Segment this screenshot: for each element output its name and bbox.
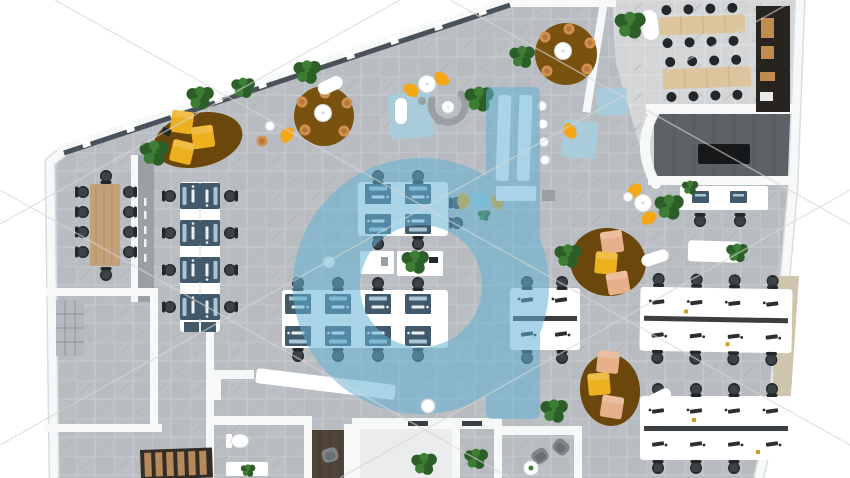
floorplan-render bbox=[0, 0, 850, 478]
wicker-chair bbox=[257, 136, 268, 147]
round-table bbox=[555, 43, 572, 60]
office-chair bbox=[690, 460, 702, 474]
workstation bbox=[200, 294, 220, 320]
wicker-chair bbox=[585, 38, 596, 49]
desk-item bbox=[542, 190, 555, 201]
desk-item bbox=[756, 450, 760, 454]
kitchen-shelf bbox=[760, 72, 775, 81]
office-chair bbox=[123, 246, 137, 258]
workstation bbox=[180, 183, 200, 209]
floorplan-canvas bbox=[0, 0, 850, 478]
office-chair bbox=[729, 274, 741, 288]
wicker-chair bbox=[564, 24, 575, 35]
wall bbox=[44, 424, 162, 432]
phone-booth bbox=[312, 430, 344, 478]
office-chair bbox=[651, 350, 663, 364]
office-chair bbox=[224, 264, 238, 276]
office-chair bbox=[100, 170, 112, 184]
bench bbox=[395, 98, 407, 124]
office-chair bbox=[224, 227, 238, 239]
desk-item bbox=[726, 342, 730, 346]
office-chair bbox=[652, 460, 664, 474]
blue-mat bbox=[388, 92, 434, 140]
wall bbox=[452, 428, 460, 478]
office-chair bbox=[75, 246, 89, 258]
storage-room bbox=[56, 300, 84, 356]
workstation bbox=[180, 257, 200, 283]
workstation bbox=[405, 294, 431, 314]
office-chair bbox=[765, 352, 777, 366]
kitchen-appliance bbox=[760, 92, 773, 101]
white-stool bbox=[624, 193, 633, 202]
round-table bbox=[315, 105, 332, 122]
pouf-cube bbox=[587, 372, 611, 396]
office-chair bbox=[766, 383, 778, 397]
office-chair bbox=[728, 383, 740, 397]
round-table bbox=[635, 195, 652, 212]
wall bbox=[504, 0, 616, 7]
office-chair bbox=[162, 190, 176, 202]
office-chair bbox=[694, 213, 706, 227]
east-bench bbox=[688, 240, 748, 263]
office-chair bbox=[224, 301, 238, 313]
wicker-chair bbox=[297, 97, 308, 108]
office-chair bbox=[767, 275, 779, 289]
office-chair bbox=[412, 277, 424, 291]
wicker-chair bbox=[342, 98, 353, 109]
conference-table bbox=[90, 184, 120, 266]
round-table bbox=[442, 101, 454, 113]
round-table bbox=[419, 76, 436, 93]
workstation bbox=[200, 257, 220, 283]
office-chair bbox=[75, 206, 89, 218]
wicker-chair bbox=[542, 66, 553, 77]
desk-item bbox=[692, 418, 696, 422]
stool bbox=[418, 97, 426, 105]
stool bbox=[435, 116, 444, 125]
office-chair bbox=[372, 277, 384, 291]
office-chair bbox=[162, 301, 176, 313]
wicker-chair bbox=[300, 125, 311, 136]
office-chair bbox=[162, 227, 176, 239]
meeting-pod-floor bbox=[360, 429, 452, 478]
workstation bbox=[180, 220, 200, 246]
desk-item bbox=[429, 257, 438, 263]
staircase bbox=[140, 447, 213, 478]
office-chair bbox=[123, 186, 137, 198]
white-stool bbox=[541, 156, 550, 165]
kitchen-shelf bbox=[761, 46, 774, 59]
office-chair bbox=[412, 236, 424, 250]
kitchen-shelf bbox=[761, 18, 774, 38]
office-chair bbox=[123, 206, 137, 218]
wall bbox=[574, 434, 582, 478]
workstation bbox=[405, 326, 431, 346]
cafeteria-table bbox=[659, 14, 746, 35]
workstation bbox=[200, 183, 220, 209]
pouf-cube bbox=[600, 230, 625, 255]
pouf-cube bbox=[605, 270, 630, 295]
door-threshold bbox=[462, 421, 482, 426]
office-chair bbox=[162, 264, 176, 276]
desk-item bbox=[381, 257, 388, 266]
wall bbox=[214, 416, 312, 425]
wicker-chair bbox=[540, 32, 551, 43]
desk-item bbox=[684, 309, 688, 313]
wicker-chair bbox=[339, 126, 350, 137]
laptop bbox=[730, 191, 747, 203]
office-chair bbox=[100, 267, 112, 281]
wall bbox=[304, 420, 312, 478]
low-wall bbox=[212, 370, 221, 400]
workstation bbox=[200, 220, 220, 246]
pouf-cube bbox=[594, 251, 618, 275]
office-chair bbox=[691, 274, 703, 288]
wall bbox=[494, 426, 582, 435]
wicker-chair bbox=[582, 64, 593, 75]
pouf-cube bbox=[596, 350, 620, 374]
conference-gray-wall bbox=[138, 155, 154, 302]
office-chair bbox=[690, 383, 702, 397]
office-chair bbox=[75, 186, 89, 198]
office-chair bbox=[728, 460, 740, 474]
media-room bbox=[654, 112, 794, 178]
office-chair bbox=[653, 273, 665, 287]
pouf-cube bbox=[599, 394, 624, 419]
white-stool bbox=[421, 399, 435, 413]
workstation bbox=[365, 294, 391, 314]
wall bbox=[344, 424, 352, 478]
office-chair bbox=[224, 190, 238, 202]
office-chair bbox=[727, 351, 739, 365]
office-chair bbox=[734, 213, 746, 227]
office-chair bbox=[123, 226, 137, 238]
wall bbox=[46, 288, 158, 296]
kitchen bbox=[756, 6, 790, 112]
